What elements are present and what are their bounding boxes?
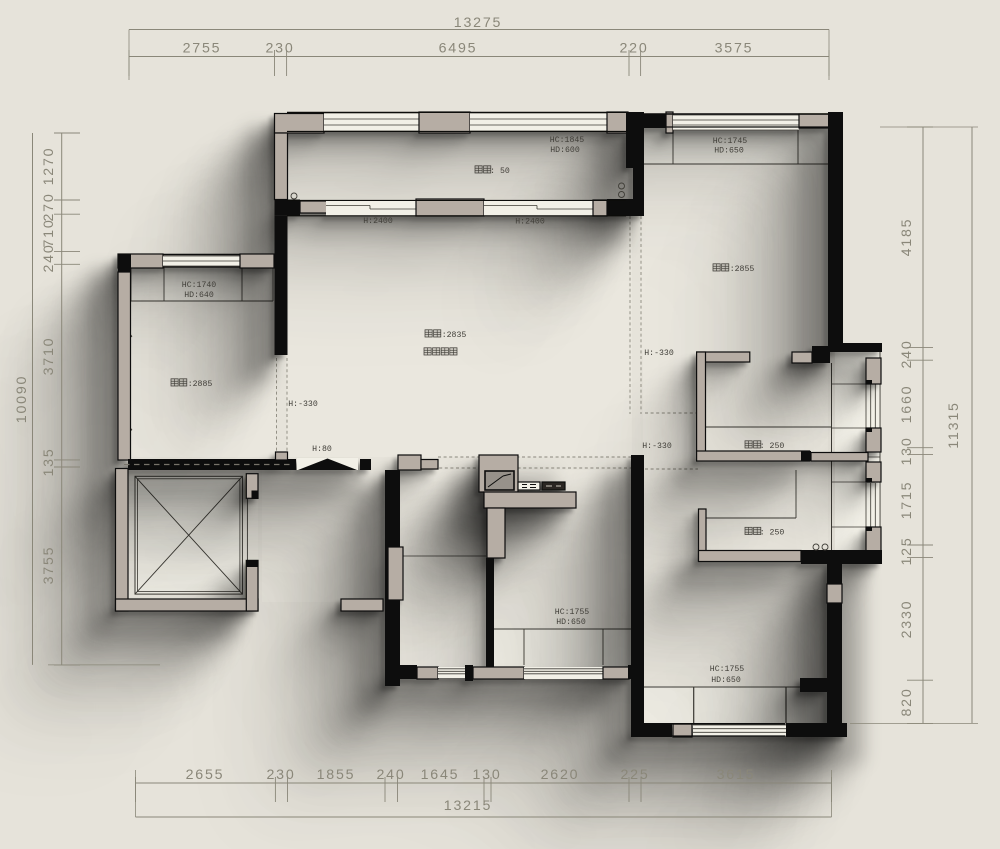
svg-text:11315: 11315 [946, 401, 962, 448]
svg-text:1270: 1270 [41, 147, 57, 186]
svg-text:HC:1755: HC:1755 [710, 665, 744, 674]
svg-text:3710: 3710 [41, 337, 57, 376]
svg-text:3615: 3615 [717, 767, 756, 783]
svg-text:13215: 13215 [444, 798, 492, 814]
svg-text::2835: :2835 [442, 331, 467, 340]
svg-text:1855: 1855 [317, 767, 356, 783]
svg-text:1645: 1645 [421, 767, 460, 783]
svg-text:H:80: H:80 [312, 445, 332, 454]
svg-text:: 50: : 50 [490, 167, 510, 176]
svg-text:10090: 10090 [14, 375, 30, 423]
svg-text:270: 270 [41, 192, 57, 221]
svg-text:225: 225 [620, 767, 649, 783]
svg-text:H:2400: H:2400 [363, 217, 393, 226]
svg-text:HD:650: HD:650 [711, 676, 741, 685]
svg-text:240: 240 [899, 339, 915, 368]
svg-text:H:-330: H:-330 [644, 349, 674, 358]
svg-text:1660: 1660 [899, 385, 915, 424]
svg-text:H:-330: H:-330 [642, 442, 672, 451]
svg-text:: 250: : 250 [760, 529, 785, 538]
svg-text:230: 230 [265, 41, 294, 57]
svg-text:H:-330: H:-330 [288, 400, 318, 409]
svg-text:HD:600: HD:600 [550, 146, 580, 155]
svg-text:135: 135 [41, 447, 57, 476]
svg-text:H:2400: H:2400 [515, 218, 545, 227]
svg-text:HD:650: HD:650 [714, 147, 744, 156]
svg-text::2855: :2855 [730, 265, 755, 274]
svg-text:2330: 2330 [899, 600, 915, 639]
svg-text::2885: :2885 [188, 380, 213, 389]
svg-text:: 250: : 250 [760, 442, 785, 451]
svg-text:13275: 13275 [454, 15, 502, 31]
svg-text:6495: 6495 [439, 41, 478, 57]
svg-text:130: 130 [472, 767, 501, 783]
svg-text:HD:650: HD:650 [556, 618, 586, 627]
svg-text:HC:1740: HC:1740 [182, 281, 216, 290]
svg-text:HD:640: HD:640 [184, 291, 214, 300]
svg-text:2655: 2655 [186, 767, 225, 783]
svg-text:820: 820 [899, 687, 915, 716]
svg-text:240: 240 [41, 243, 57, 272]
svg-text:HC:1845: HC:1845 [550, 136, 584, 145]
svg-text:220: 220 [619, 41, 648, 57]
svg-text:710: 710 [41, 218, 57, 247]
svg-text:2620: 2620 [541, 767, 580, 783]
svg-text:240: 240 [376, 767, 405, 783]
svg-text:125: 125 [899, 536, 915, 565]
svg-text:3755: 3755 [41, 546, 57, 585]
svg-text:230: 230 [266, 767, 295, 783]
svg-text:130: 130 [899, 436, 915, 465]
svg-text:3575: 3575 [715, 41, 754, 57]
svg-text:1715: 1715 [899, 481, 915, 520]
svg-text:4185: 4185 [899, 218, 915, 257]
svg-text:2755: 2755 [183, 41, 222, 57]
svg-text:HC:1745: HC:1745 [713, 137, 747, 146]
svg-text:HC:1755: HC:1755 [555, 608, 589, 617]
